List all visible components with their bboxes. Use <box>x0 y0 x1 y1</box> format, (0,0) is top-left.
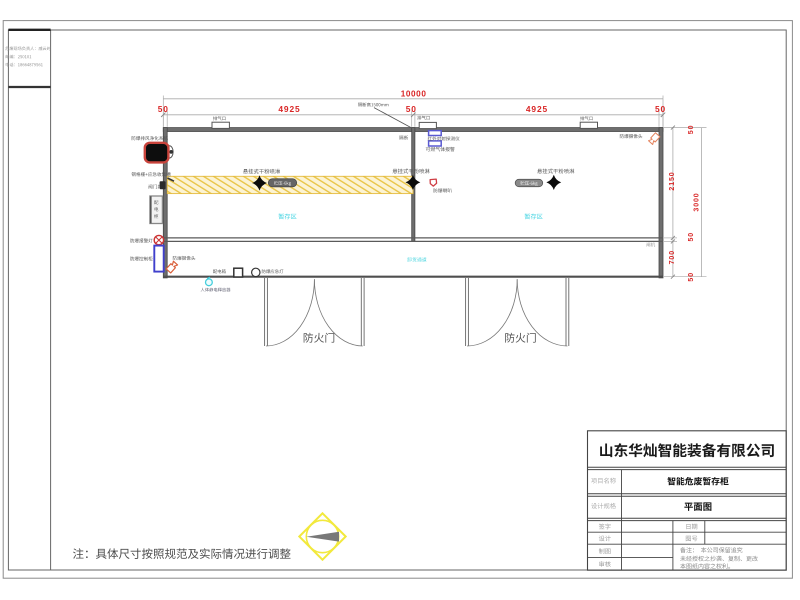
svg-text:4925: 4925 <box>278 104 300 114</box>
svg-text:4925: 4925 <box>526 104 548 114</box>
svg-text:50: 50 <box>688 125 695 135</box>
svg-text:50: 50 <box>158 104 169 114</box>
svg-text:50: 50 <box>688 272 695 282</box>
svg-text:50: 50 <box>655 104 666 114</box>
svg-text:2150: 2150 <box>669 171 676 190</box>
svg-text:700: 700 <box>669 250 676 264</box>
svg-text:3000: 3000 <box>694 192 701 211</box>
svg-text:10000: 10000 <box>401 90 427 99</box>
svg-text:50: 50 <box>406 104 417 114</box>
svg-text:50: 50 <box>688 232 695 242</box>
